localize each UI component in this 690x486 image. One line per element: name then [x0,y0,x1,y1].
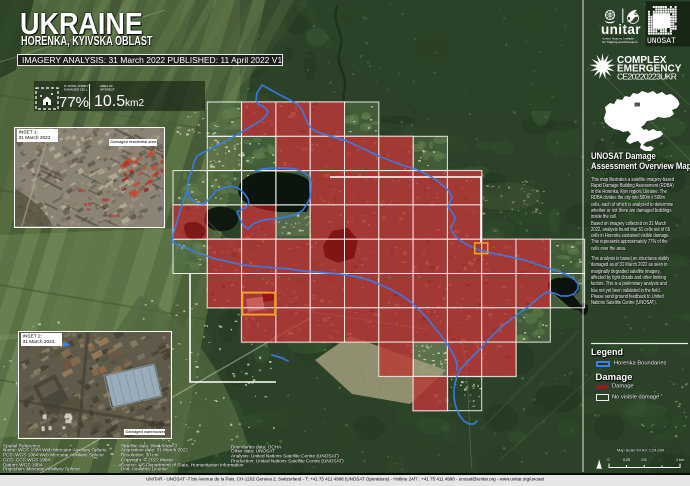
svg-text:0.5: 0.5 [642,458,647,462]
svg-text:0: 0 [608,458,610,462]
svg-text:0.25: 0.25 [623,458,630,462]
svg-text:1 km: 1 km [676,458,684,462]
